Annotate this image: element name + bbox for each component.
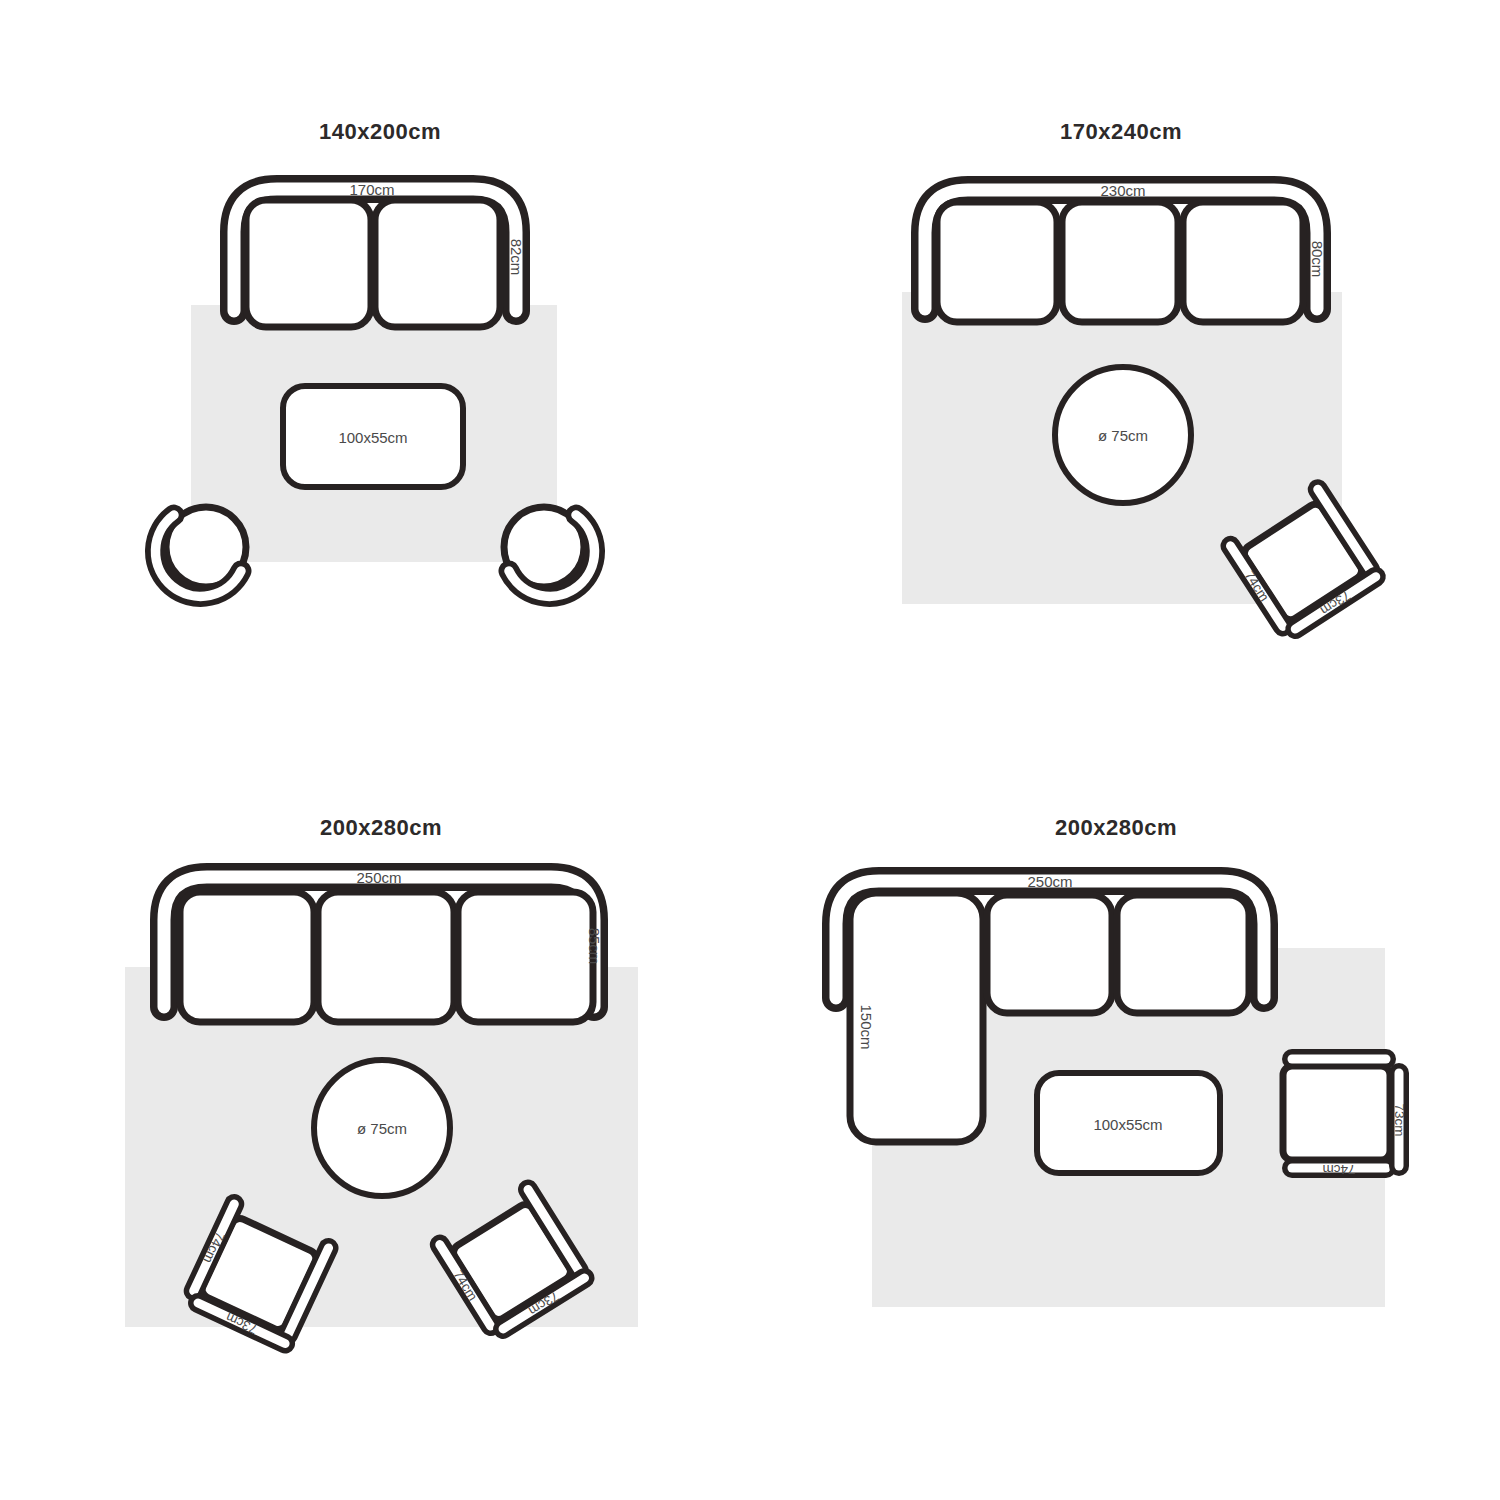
sofa-cushion (937, 202, 1057, 322)
layout-140x200: 140x200cm 170cm 82cm 100x55cm (156, 119, 595, 597)
rug-size-guide-canvas: 140x200cm 170cm 82cm 100x55cm 170x240cm (0, 0, 1500, 1500)
sofa-depth-label: 80cm (1309, 241, 1326, 278)
coffee-table-label: 100x55cm (1093, 1116, 1162, 1133)
sofa-cushion (458, 892, 593, 1022)
round-chair (504, 507, 594, 596)
sofa-cushion (1183, 202, 1303, 322)
round-table: ø 75cm (1055, 367, 1191, 503)
sofa-depth-label: 82cm (508, 239, 525, 276)
sofa-cushion (375, 200, 500, 327)
coffee-table: 100x55cm (283, 386, 463, 487)
round-chair (156, 507, 246, 596)
layout-title: 170x240cm (1060, 119, 1182, 144)
round-table: ø 75cm (314, 1060, 450, 1196)
armchair-front-label: 74cm (1322, 1162, 1355, 1177)
sofa-width-label: 230cm (1100, 182, 1145, 199)
coffee-table: 100x55cm (1037, 1073, 1220, 1173)
sofa-cushion (180, 892, 314, 1022)
layout-200x280-b: 200x280cm 250cm 150cm 100x55cm 73cm 74cm (836, 815, 1407, 1308)
layout-title: 200x280cm (1055, 815, 1177, 840)
sofa-width-label: 250cm (1027, 873, 1072, 890)
sofa-cushion (318, 892, 454, 1022)
two-seat-sofa: 170cm 82cm (234, 181, 525, 328)
three-seat-sofa: 250cm 85cm (164, 869, 603, 1023)
round-table-label: ø 75cm (1098, 427, 1148, 444)
three-seat-sofa: 230cm 80cm (925, 182, 1326, 323)
sofa-cushion (1062, 202, 1178, 322)
round-table-label: ø 75cm (357, 1120, 407, 1137)
layout-200x280-a: 200x280cm 250cm 85cm ø 75cm 74cm 73cm (125, 815, 638, 1351)
armchair-seat (1283, 1066, 1390, 1160)
sofa-cushion (246, 200, 371, 327)
coffee-table-label: 100x55cm (338, 429, 407, 446)
armchair-side-label: 73cm (1392, 1103, 1407, 1136)
armchair: 73cm 74cm (1283, 1059, 1407, 1177)
chaise-length-label: 150cm (858, 1004, 875, 1049)
layout-title: 200x280cm (320, 815, 442, 840)
sofa-cushion (1117, 895, 1249, 1013)
layout-title: 140x200cm (319, 119, 441, 144)
sofa-depth-label: 85cm (586, 928, 603, 965)
sofa-width-label: 250cm (356, 869, 401, 886)
sofa-cushion (987, 895, 1112, 1013)
layout-170x240: 170x240cm 230cm 80cm ø 75cm 74cm 73cm (902, 119, 1380, 645)
sofa-width-label: 170cm (349, 181, 394, 198)
